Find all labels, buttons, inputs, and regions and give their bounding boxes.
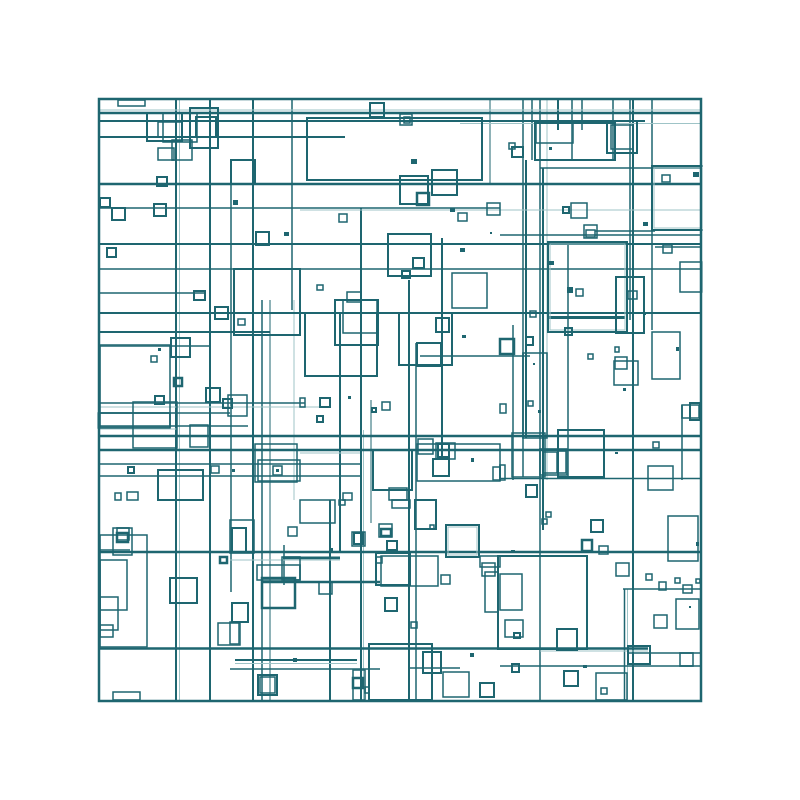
artwork-square xyxy=(413,258,424,268)
artwork-square xyxy=(232,469,235,472)
artwork-square xyxy=(232,603,248,622)
artwork-square xyxy=(317,416,323,422)
artwork-square xyxy=(482,563,495,576)
artwork-square xyxy=(511,550,515,552)
artwork-square xyxy=(151,356,157,362)
artwork-square xyxy=(230,622,239,644)
artwork-square xyxy=(588,354,593,359)
artwork-square xyxy=(329,548,333,552)
artwork-square xyxy=(680,262,702,292)
artwork-square xyxy=(418,439,433,454)
artwork-square xyxy=(171,338,190,357)
artwork-square xyxy=(372,408,376,412)
artwork-square xyxy=(549,261,554,265)
artwork-square xyxy=(220,557,227,563)
artwork-square xyxy=(230,520,254,553)
artwork-square xyxy=(480,243,482,245)
artwork-square xyxy=(417,343,441,366)
artwork-square xyxy=(238,319,245,325)
artwork-square xyxy=(392,500,410,508)
artwork-square xyxy=(233,200,238,205)
artwork-square xyxy=(528,401,533,406)
artwork-square xyxy=(689,606,691,608)
artwork-square xyxy=(284,232,289,236)
artwork-square xyxy=(696,542,699,546)
artwork-square xyxy=(343,493,352,500)
artwork-square xyxy=(232,528,246,552)
artwork-square xyxy=(335,300,378,345)
artwork-square xyxy=(107,248,116,257)
artwork-square xyxy=(512,664,519,672)
artwork-square xyxy=(663,245,672,253)
artwork-square xyxy=(680,653,693,666)
artwork-square xyxy=(540,449,567,475)
artwork-square xyxy=(576,289,583,296)
artwork-square xyxy=(676,599,699,629)
artwork-square xyxy=(387,541,397,550)
artwork-square xyxy=(432,170,457,195)
artwork-square xyxy=(100,625,113,637)
artwork-square xyxy=(586,230,595,237)
artwork-square xyxy=(373,450,412,490)
artwork-square xyxy=(536,123,573,143)
artwork-square xyxy=(652,332,680,379)
artwork-square xyxy=(615,452,618,454)
artwork-square xyxy=(480,683,494,697)
artwork-square xyxy=(276,469,279,472)
artwork-square xyxy=(542,519,547,524)
artwork-square xyxy=(100,560,127,610)
artwork-page xyxy=(0,0,800,800)
artwork-square xyxy=(441,575,450,584)
artwork-square xyxy=(546,512,551,517)
artwork-square xyxy=(433,459,449,476)
artwork-square xyxy=(339,214,347,222)
artwork-square xyxy=(557,629,577,650)
artwork-square xyxy=(231,160,255,184)
artwork-square xyxy=(582,540,592,551)
artwork-square xyxy=(460,248,465,252)
artwork-square xyxy=(487,203,500,215)
artwork-square xyxy=(616,563,629,576)
artwork-squares xyxy=(98,99,704,701)
artwork-square xyxy=(430,525,434,529)
artwork-square xyxy=(583,665,587,668)
artwork-square xyxy=(615,347,619,352)
artwork-square xyxy=(485,572,498,612)
artwork-square xyxy=(258,675,277,695)
artwork-square xyxy=(288,527,297,536)
artwork-square xyxy=(500,574,522,610)
artwork-square xyxy=(118,100,145,106)
artwork-square xyxy=(458,213,467,221)
artwork-square xyxy=(493,467,500,480)
artwork-square xyxy=(596,673,627,700)
artwork-square xyxy=(158,348,161,351)
artwork-square xyxy=(450,208,455,212)
artwork-square xyxy=(470,653,474,657)
artwork-square xyxy=(500,339,514,354)
artwork-square xyxy=(591,520,603,532)
artwork-square xyxy=(158,122,182,137)
artwork-square xyxy=(100,345,170,427)
artwork-square xyxy=(158,470,203,500)
artwork-square xyxy=(693,172,699,177)
artwork-square xyxy=(526,485,537,497)
artwork-square xyxy=(317,285,323,290)
artwork-square xyxy=(399,313,452,365)
artwork-square xyxy=(500,404,506,413)
artwork-square xyxy=(348,396,351,399)
artwork-square xyxy=(564,671,578,686)
artwork-square xyxy=(320,398,330,407)
artwork-square xyxy=(676,347,679,351)
artwork-square xyxy=(170,578,197,603)
artwork-square xyxy=(514,633,520,638)
artwork-square xyxy=(643,222,648,226)
artwork-square xyxy=(293,658,297,662)
artwork-square xyxy=(452,273,487,308)
artwork-square xyxy=(662,175,670,182)
artwork-square xyxy=(462,335,466,338)
artwork-square xyxy=(567,287,573,293)
artwork-square xyxy=(646,574,652,580)
artwork-square xyxy=(218,623,240,645)
artwork-square xyxy=(443,672,469,697)
artwork-square xyxy=(644,313,646,315)
artwork-square xyxy=(654,615,667,628)
artwork-square xyxy=(696,579,700,583)
artwork-square xyxy=(206,388,220,402)
artwork-square xyxy=(601,688,607,694)
artwork-square xyxy=(115,493,121,500)
artwork-square xyxy=(533,363,535,365)
artwork-square xyxy=(100,198,110,207)
artwork-square xyxy=(127,492,138,500)
artwork-square xyxy=(128,467,134,473)
artwork-square xyxy=(538,410,541,413)
artwork-square xyxy=(498,556,587,649)
artwork-square xyxy=(411,159,417,164)
artwork-square xyxy=(174,378,182,386)
artwork-square xyxy=(365,687,369,693)
generative-artwork-canvas xyxy=(0,0,800,800)
artwork-square xyxy=(381,529,391,536)
artwork-square xyxy=(490,232,492,234)
artwork-square xyxy=(623,388,626,391)
artwork-square xyxy=(385,598,397,611)
artwork-square xyxy=(526,337,533,345)
artwork-square xyxy=(668,516,698,561)
artwork-square xyxy=(549,147,552,150)
artwork-square xyxy=(615,357,627,369)
artwork-square xyxy=(382,402,390,410)
artwork-square xyxy=(558,451,566,473)
artwork-square xyxy=(211,466,219,473)
artwork-square xyxy=(471,458,474,462)
artwork-square xyxy=(653,442,659,448)
artwork-square xyxy=(675,578,680,583)
artwork-square xyxy=(112,208,125,220)
artwork-square xyxy=(154,204,166,216)
artwork-square xyxy=(113,692,140,700)
artwork-square xyxy=(614,361,638,385)
